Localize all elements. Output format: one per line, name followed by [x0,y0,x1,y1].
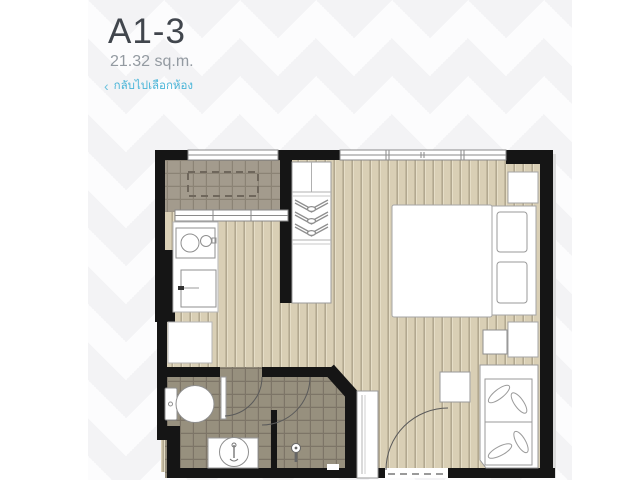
unit-area: 21.32 sq.m. [110,53,194,71]
toilet-bowl [176,386,214,423]
toilet-tank [165,388,177,420]
washing-machine [168,322,212,363]
balcony-floor [165,160,287,212]
wall-top-center [278,150,342,160]
unit-detail-page: A1-3 21.32 sq.m. ‹ กลับไปเลือกห้อง [0,0,640,480]
coffee-table [440,372,470,402]
back-link-label: กลับไปเลือกห้อง [114,77,193,95]
wall-bath-top-left [165,367,220,377]
refrigerator-handle [178,286,184,290]
bed-mattress [392,205,492,317]
shower-stem [295,453,298,462]
back-to-room-selection-link[interactable]: ‹ กลับไปเลือกห้อง [104,77,193,95]
shower-niche [327,464,339,470]
wall-bath-right [345,395,357,478]
wardrobe [292,162,331,303]
wall-left-upper [155,150,165,252]
nightstand-bottom [508,322,538,357]
wall-left-pillar [155,250,175,322]
kitchen [168,222,218,363]
burner [201,236,212,247]
daybed-sofa [480,365,538,468]
bathroom-partition-wall [271,410,277,478]
wall-bath-top-right [262,367,334,377]
pillow [497,212,527,252]
nightstand-top [508,172,538,203]
pillow [497,262,527,303]
bathroom-door-leaf [221,377,226,419]
wall-wardrobe [280,160,292,303]
shoe-cabinet [357,391,378,478]
page-title: A1-3 [108,12,186,52]
wall-shadow [553,154,556,478]
wall-left-step [157,426,180,440]
floor-plan [155,148,557,480]
sink-basin [181,234,199,252]
chevron-left-icon: ‹ [104,79,109,93]
side-stool [483,330,507,354]
wall-bottom-right [448,468,555,478]
wall-right [540,150,553,478]
